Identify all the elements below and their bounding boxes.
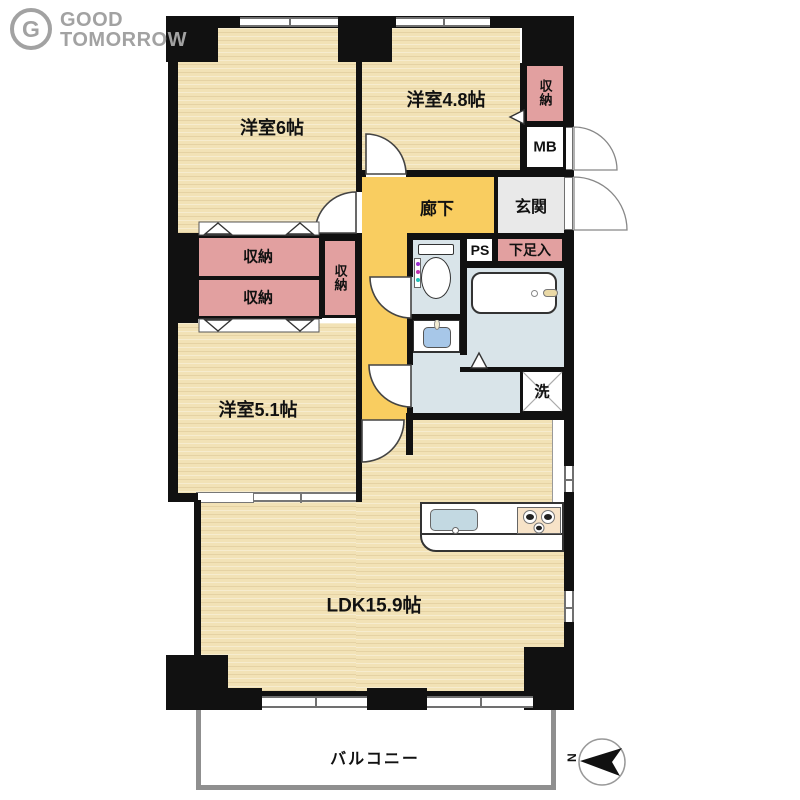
- label-bedroom51: 洋室5.1帖: [218, 396, 297, 422]
- brand-line2: TOMORROW: [60, 30, 187, 50]
- label-entrance: 玄関: [515, 193, 547, 217]
- wall-segment: [194, 500, 201, 657]
- wall-segment: [407, 318, 413, 365]
- label-laundry: 洗: [534, 381, 549, 402]
- label-ldk: LDK15.9帖: [326, 591, 421, 618]
- label-closet-2: 収納: [243, 287, 273, 308]
- label-meter-box: MB: [533, 139, 556, 156]
- wall-segment: [166, 655, 228, 710]
- balcony-sliding-door-left: [262, 696, 367, 708]
- wall-segment: [406, 170, 574, 177]
- brand-logo: G GOOD TOMORROW: [10, 8, 187, 50]
- label-pipe-space: PS: [471, 242, 490, 258]
- entrance-door-leaf: [564, 177, 573, 230]
- brand-logo-text: GOOD TOMORROW: [60, 10, 187, 50]
- label-shoe-cabinet: 下足入: [509, 240, 551, 260]
- wall-segment: [407, 314, 467, 320]
- wall-segment: [407, 240, 413, 277]
- wall-segment: [168, 233, 198, 323]
- brand-logo-letter: G: [22, 18, 40, 41]
- brand-logo-icon: G: [10, 8, 52, 50]
- wall-segment: [406, 413, 574, 420]
- window-right-lower: [564, 591, 574, 622]
- brand-line1: GOOD: [60, 10, 187, 30]
- label-balcony: バルコニー: [330, 745, 420, 769]
- label-closet-1: 収納: [243, 246, 273, 267]
- label-closet-4: 収納: [536, 79, 555, 107]
- wall-segment: [406, 420, 413, 455]
- window-right-upper: [564, 466, 574, 492]
- wall-segment: [564, 492, 574, 591]
- wall-segment: [338, 16, 392, 62]
- label-bedroom48: 洋室4.8帖: [406, 86, 485, 112]
- label-corridor: 廊下: [420, 195, 454, 220]
- wall-segment: [494, 177, 498, 238]
- wall-segment: [228, 688, 262, 710]
- balcony-sliding-door-right: [427, 696, 533, 708]
- wall-segment: [356, 16, 362, 192]
- wall-segment: [367, 688, 427, 710]
- walls-layer: [0, 0, 800, 800]
- label-bedroom6: 洋室6帖: [240, 114, 304, 140]
- floor-plan-canvas: N 洋室6帖 洋室4.8帖 洋室5.1帖 LDK15.9帖 廊下 玄関 下足入 …: [0, 0, 800, 800]
- label-closet-3: 収納: [331, 264, 350, 292]
- window-top-bedroom6: [240, 17, 338, 27]
- wall-segment: [356, 170, 366, 177]
- wall-segment: [522, 16, 574, 67]
- window-top-bedroom48: [396, 17, 490, 27]
